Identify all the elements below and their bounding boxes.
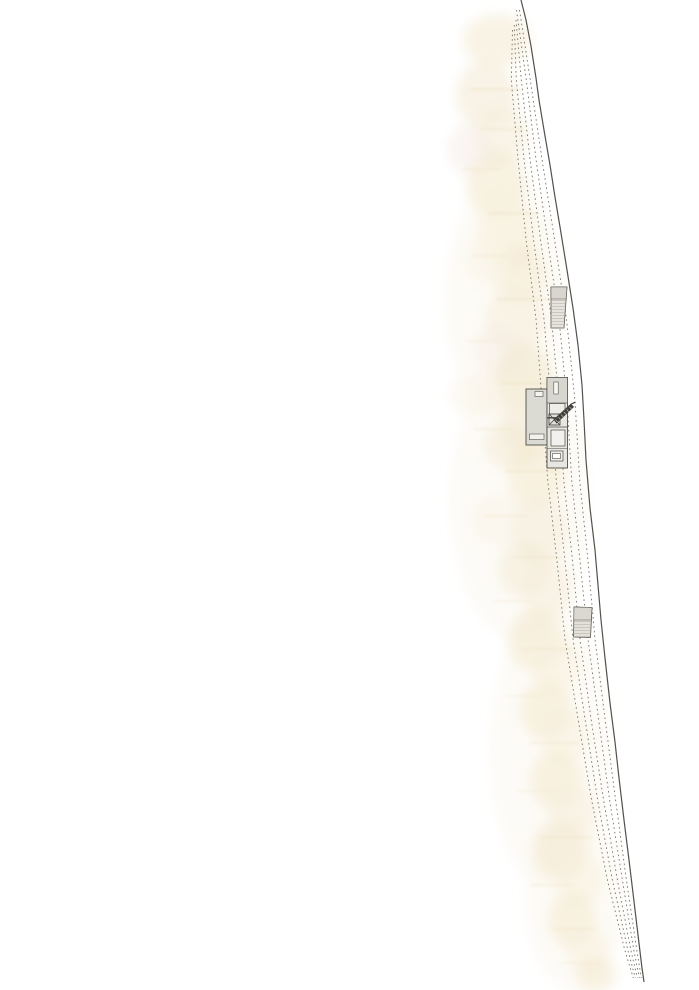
veg-streak <box>512 556 562 559</box>
lower-stair-treads <box>574 620 592 638</box>
veg-streak <box>540 836 592 839</box>
veg-streak <box>520 648 572 651</box>
veg-streak <box>530 742 580 744</box>
lower-stair-landing <box>574 607 592 620</box>
veg-streak <box>506 470 560 473</box>
roof-slot <box>554 382 558 394</box>
veg-streak <box>506 695 546 697</box>
veg-streak <box>462 168 502 170</box>
veg-blob <box>463 14 531 66</box>
veg-streak <box>480 128 524 131</box>
veg-streak <box>494 600 534 602</box>
annex-bottom-slot <box>530 434 545 440</box>
veg-streak <box>560 962 600 964</box>
veg-streak <box>472 255 508 257</box>
upper-stair-landing <box>551 287 567 299</box>
room-box-middle <box>551 430 565 446</box>
veg-streak <box>474 428 514 430</box>
site-plan-page <box>0 0 699 990</box>
veg-streak <box>496 298 548 301</box>
room-box-lower-inner <box>553 454 561 459</box>
veg-streak <box>530 884 574 886</box>
veg-blob <box>464 236 512 284</box>
veg-blob <box>450 373 506 417</box>
veg-streak <box>516 790 556 792</box>
vegetation-wash <box>445 14 625 990</box>
veg-streak <box>466 340 500 342</box>
upper-stair-treads <box>551 299 566 328</box>
annex-skylight <box>535 392 543 397</box>
site-plan-drawing <box>0 0 699 990</box>
lower-exterior-stair <box>574 607 593 638</box>
veg-streak <box>484 515 528 517</box>
entry-stair-flag <box>572 402 576 404</box>
upper-exterior-stair <box>551 287 567 328</box>
veg-streak <box>552 928 596 930</box>
